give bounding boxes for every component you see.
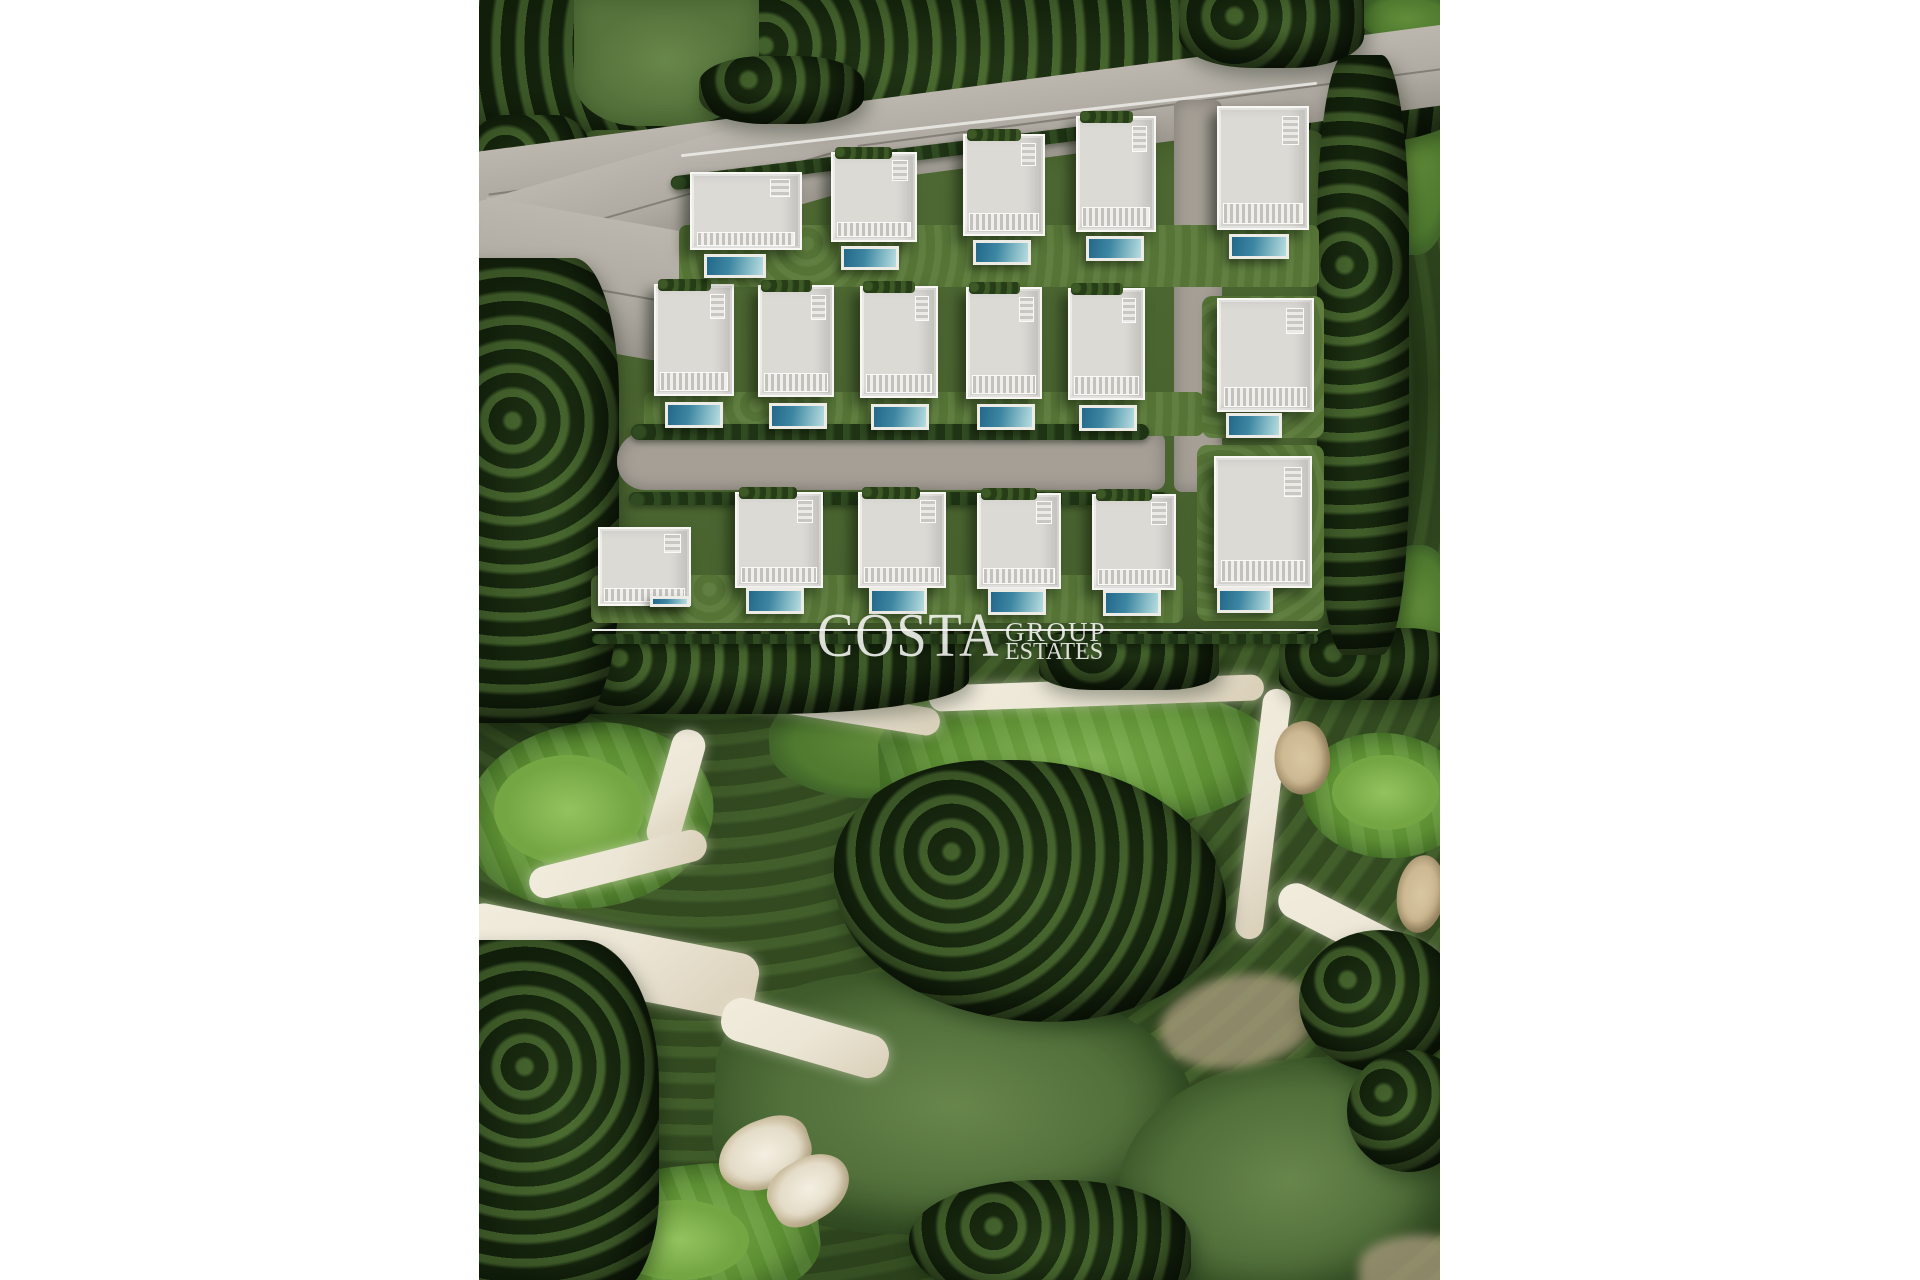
villa-r1-2-pool xyxy=(841,246,899,270)
tree-column-left xyxy=(479,258,619,723)
villa-r3-2-roof-stair xyxy=(797,500,813,522)
villa-r1-1-pool-water xyxy=(707,257,763,275)
villa-r1-3-pool xyxy=(973,240,1031,265)
villa-r3-4 xyxy=(977,493,1061,589)
villa-r2-2-pool-water xyxy=(772,406,824,426)
tree-cluster-bottom-center xyxy=(909,1180,1191,1280)
villa-r3-5-louver-facade xyxy=(1098,569,1170,586)
villa-r3-5-pergola-green xyxy=(1096,489,1152,501)
villa-r3-5-pool-water xyxy=(1106,593,1158,613)
villa-r2-4-louver-facade xyxy=(972,375,1037,394)
villa-r3-5-roof-stair xyxy=(1151,502,1167,524)
villa-r2-4-roof-stair xyxy=(1019,297,1033,323)
villa-r2-3-pergola-green xyxy=(863,281,915,293)
page: COSTA GROUP ESTATES xyxy=(0,0,1920,1280)
villa-r2-2-roof-stair xyxy=(811,295,825,321)
villa-r1-2-roof-stair xyxy=(892,160,908,181)
villa-r2-6-pool-water xyxy=(1229,416,1279,435)
villa-r3-6-pool xyxy=(1217,588,1273,613)
villa-r1-5-louver-facade xyxy=(1223,203,1302,224)
villa-r3-2-louver-facade xyxy=(741,567,817,584)
villa-r3-3-louver-facade xyxy=(864,567,940,584)
villa-r1-2-louver-facade xyxy=(837,222,911,238)
villa-r3-3-roof-stair xyxy=(920,500,936,522)
villa-r1-2 xyxy=(831,152,917,242)
villa-r2-1-pergola-green xyxy=(658,279,711,291)
villa-r1-5-pool-water xyxy=(1232,237,1286,256)
villa-r2-2-pool xyxy=(769,403,827,429)
villa-r2-6 xyxy=(1217,298,1314,412)
villa-r2-1-pool xyxy=(665,402,723,428)
villa-r2-4 xyxy=(966,287,1042,399)
villa-r2-3-pool-water xyxy=(874,407,926,427)
villa-r2-6-pool xyxy=(1226,413,1282,438)
villa-r1-4 xyxy=(1076,116,1156,232)
tree-cluster-bottom-left xyxy=(479,940,659,1280)
villa-r3-4-louver-facade xyxy=(983,568,1055,585)
villa-r1-5 xyxy=(1217,106,1309,230)
villa-r2-1 xyxy=(654,284,734,396)
watermark-brand: COSTA xyxy=(817,605,1000,667)
villa-r2-5-pool xyxy=(1079,405,1137,431)
villa-r1-2-pergola-green xyxy=(835,147,892,159)
bunker-right-lower xyxy=(1392,852,1440,936)
villa-r2-2 xyxy=(758,285,834,397)
villa-r1-1-pool xyxy=(704,254,766,278)
golf-green-right-apron xyxy=(1332,755,1439,830)
villa-r2-2-louver-facade xyxy=(764,373,829,392)
villa-r3-3 xyxy=(858,492,946,588)
villa-r3-2-pergola-green xyxy=(739,487,798,499)
villa-r1-4-pool xyxy=(1086,236,1144,261)
villa-r2-5-pergola-green xyxy=(1071,283,1122,295)
villa-r2-4-pergola-green xyxy=(969,282,1019,294)
villa-r1-3-louver-facade xyxy=(969,213,1039,231)
villa-r1-2-pool-water xyxy=(844,249,896,267)
villa-r2-1-louver-facade xyxy=(660,372,728,391)
villa-r2-5-pool-water xyxy=(1082,408,1134,428)
villa-r1-4-louver-facade xyxy=(1082,207,1150,227)
villa-r2-3-roof-stair xyxy=(915,296,930,322)
villa-r2-2-pergola-green xyxy=(761,280,811,292)
tree-overhang-left xyxy=(699,56,864,124)
villa-r2-1-pool-water xyxy=(668,405,720,425)
villa-r3-5 xyxy=(1092,494,1176,590)
villa-r2-6-louver-facade xyxy=(1224,387,1308,407)
villa-r3-2-pool xyxy=(746,588,804,614)
villa-r2-4-pool xyxy=(977,404,1035,430)
tree-overhang-right xyxy=(1179,0,1364,68)
villa-r3-6-roof-stair xyxy=(1284,467,1302,497)
villa-r1-1 xyxy=(690,172,802,250)
villa-r1-1-roof-stair xyxy=(770,179,790,197)
villa-r2-3-pool xyxy=(871,404,929,430)
street-inner xyxy=(617,432,1165,490)
villa-r1-4-pool-water xyxy=(1089,239,1141,258)
villa-r2-3 xyxy=(860,286,938,398)
villa-r1-3-pergola-green xyxy=(967,129,1022,141)
villa-r1-3 xyxy=(963,134,1045,236)
villa-r1-1-louver-facade xyxy=(697,232,794,246)
villa-r3-1-pool-water xyxy=(653,599,687,604)
villa-r2-5-louver-facade xyxy=(1074,376,1140,395)
villa-r2-4-pool-water xyxy=(980,407,1032,427)
villa-r1-5-roof-stair xyxy=(1282,116,1299,144)
villa-r2-6-roof-stair xyxy=(1286,308,1304,334)
villa-r1-3-roof-stair xyxy=(1021,143,1036,167)
villa-r2-1-roof-stair xyxy=(710,294,725,320)
villa-r3-1-roof-stair xyxy=(664,534,681,553)
villa-r3-6-pool-water xyxy=(1220,591,1270,610)
villa-r1-4-roof-stair xyxy=(1132,126,1147,153)
villa-r3-6 xyxy=(1214,456,1312,588)
villa-r3-3-pergola-green xyxy=(862,487,921,499)
villa-r3-1 xyxy=(598,527,691,606)
villa-r3-4-pergola-green xyxy=(981,488,1037,500)
villa-r3-1-pool xyxy=(650,596,690,607)
villa-r3-4-roof-stair xyxy=(1036,501,1052,523)
villa-r3-2-pool-water xyxy=(749,591,801,611)
villa-r1-4-pergola-green xyxy=(1080,111,1133,123)
villa-r3-2 xyxy=(735,492,823,588)
villa-r3-6-louver-facade xyxy=(1221,560,1306,582)
villa-r2-5-roof-stair xyxy=(1122,298,1136,324)
villa-r3-5-pool xyxy=(1103,590,1161,616)
villa-r1-5-pool xyxy=(1229,234,1289,259)
villa-r2-5 xyxy=(1068,288,1145,400)
villa-r1-3-pool-water xyxy=(976,243,1028,262)
villa-r2-3-louver-facade xyxy=(866,374,933,393)
aerial-render: COSTA GROUP ESTATES xyxy=(479,0,1440,1280)
tree-column-right xyxy=(1317,55,1409,655)
watermark-estates-label: ESTATES xyxy=(1005,640,1103,664)
